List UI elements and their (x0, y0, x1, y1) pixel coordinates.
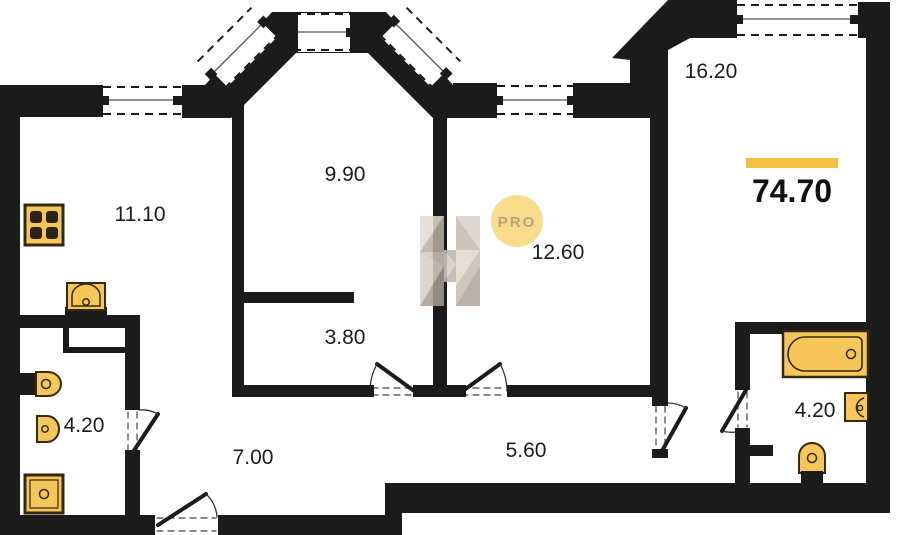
label-bedroom: 12.60 (532, 241, 585, 264)
wall-bottom-left-a (0, 515, 155, 535)
window-kitchen (100, 86, 182, 115)
wall-bath-left-a (125, 315, 140, 410)
wall-kitchen-divider (232, 117, 244, 397)
shower-icon (25, 475, 63, 513)
total-area-block: 74.70 (746, 158, 838, 209)
door-380 (366, 364, 421, 397)
watermark-h-logo (420, 216, 480, 306)
wall-bath-right-a (735, 334, 750, 390)
label-corridor: 5.60 (506, 439, 547, 462)
wall-kitchen-bath (0, 315, 137, 328)
floor-plan-canvas: 11.10 9.90 12.60 16.20 3.80 4.20 7.00 5.… (0, 0, 900, 535)
door-bath-right (722, 390, 747, 432)
wall-row-a (232, 385, 370, 397)
label-bath-right: 4.20 (795, 399, 836, 422)
wall-bath-right-stub (750, 445, 773, 456)
label-living: 9.90 (325, 163, 366, 186)
window-1620 (734, 4, 859, 37)
duct-bottom (63, 347, 128, 353)
wall-hook-380 (244, 292, 354, 303)
stove-icon (25, 205, 63, 245)
toilet-icon-left-1 (20, 372, 61, 396)
wall-diagonal-topright (612, 0, 737, 60)
wall-top-left-a (0, 85, 103, 117)
label-kitchen: 11.10 (115, 203, 166, 226)
wall-bath-right-jamb (735, 428, 750, 438)
toilet-icon-left-2 (37, 416, 59, 442)
window-bay-center (289, 13, 355, 52)
toilet-icon-right (799, 443, 825, 487)
wall-row-c (507, 385, 668, 397)
pro-logo-text: PRO (498, 214, 537, 231)
wall-1260-right (650, 44, 668, 397)
bath-right-sink-icon (845, 393, 868, 421)
jamb-passage-top (652, 397, 668, 406)
bathtub-icon (783, 331, 868, 377)
pro-logo: PRO (491, 195, 543, 247)
wall-bottom-right (390, 483, 890, 513)
door-entrance (157, 494, 217, 531)
jamb-passage-bottom (652, 449, 668, 458)
label-inner-hall: 3.80 (325, 326, 366, 349)
label-bath-left: 4.20 (64, 414, 105, 437)
kitchen-sink-icon (65, 283, 107, 316)
wall-bath-right-b (735, 438, 750, 487)
floor-plan-svg: 11.10 9.90 12.60 16.20 3.80 4.20 7.00 5.… (0, 0, 900, 535)
wall-left (0, 85, 20, 535)
accent-bar (746, 158, 838, 168)
total-area-value: 74.70 (752, 173, 832, 209)
wall-row-b (417, 385, 460, 397)
wall-right (866, 2, 890, 500)
door-bath-left (125, 402, 158, 452)
label-master: 16.20 (685, 60, 738, 83)
window-1260 (494, 85, 576, 116)
door-passage (656, 403, 686, 451)
door-1260 (456, 364, 507, 397)
wall-bath-left-b (125, 450, 140, 515)
wall-top-1260-a (453, 83, 497, 118)
wall-bottom-left-b (218, 515, 390, 535)
label-hallway: 7.00 (233, 446, 274, 469)
